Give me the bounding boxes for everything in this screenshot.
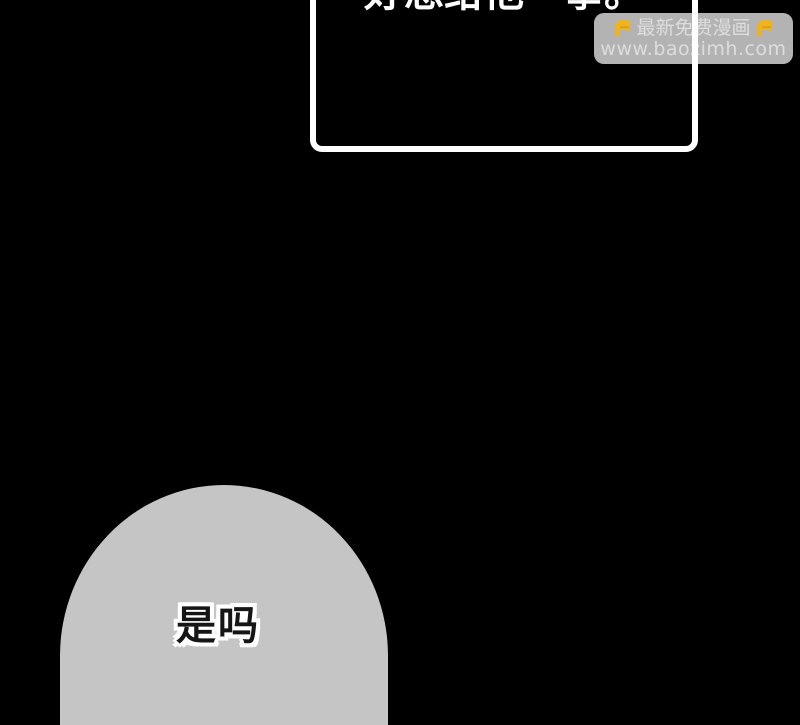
watermark-title: 最新免费漫画 — [636, 17, 750, 39]
pointing-down-hand-icon — [612, 18, 633, 39]
dialogue-text: 好想给他一拳。 — [310, 0, 698, 13]
watermark-site-url: www.baozimh.com — [600, 39, 786, 60]
bubble-text: 是吗 — [176, 606, 260, 646]
watermark-title-row: 最新免费漫画 — [612, 17, 774, 39]
watermark-badge: 最新免费漫画 www.baozimh.com — [594, 13, 793, 64]
pointing-down-hand-icon — [754, 18, 775, 39]
comic-page: { "canvas": { "width": 800, "height": 62… — [0, 0, 800, 625]
